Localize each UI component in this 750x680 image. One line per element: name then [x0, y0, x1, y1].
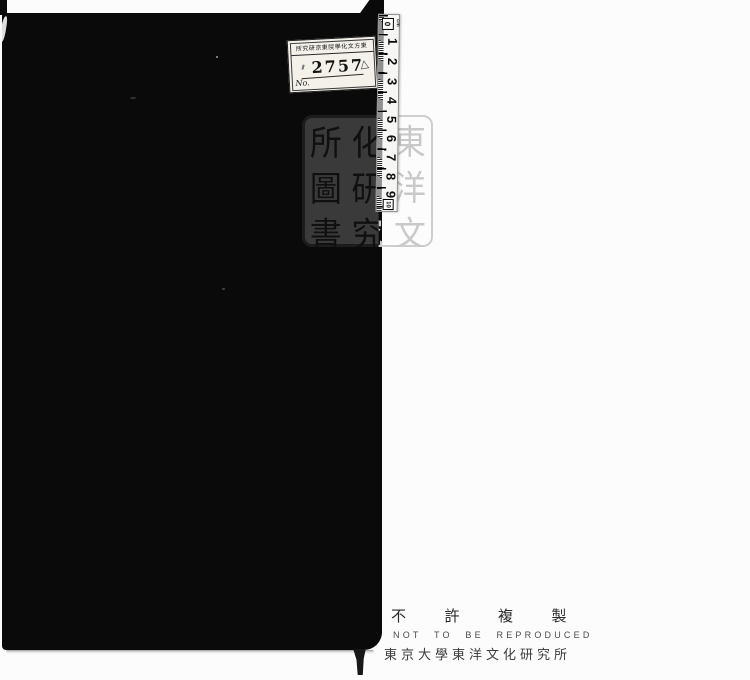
footer-notice-en: NOT TO BE REPRODUCED [393, 630, 593, 640]
ruler-number: 6 [384, 131, 399, 145]
ruler-number: 1 [385, 34, 400, 48]
cover-bottom-shadow [6, 650, 374, 654]
accession-check-mark: △ [359, 56, 369, 70]
dust-speck [216, 56, 218, 58]
seal-character: 文 [389, 207, 431, 257]
library-seal: 所 圖 書 化 研 究 東 洋 文 所 圖 書 化 研 [302, 115, 433, 247]
scale-ruler: 0 cm 1 2 3 4 5 6 7 8 9 10 [376, 14, 400, 212]
ruler-number: 8 [383, 169, 398, 183]
seal-column: 所 圖 書 [305, 118, 347, 244]
book-cover-top-left-corner [0, 0, 7, 15]
library-label-frame: 所究硏京東院學化文方東 2757 △ No. [289, 38, 375, 90]
book-cover-top-edge [356, 0, 384, 14]
label-number-area: 2757 △ No. [291, 51, 375, 89]
ruler-unit-label: cm [395, 19, 401, 27]
scanned-page: 所 圖 書 化 研 究 東 洋 文 所 圖 書 化 研 [0, 0, 750, 680]
ruler-number: 4 [384, 93, 399, 107]
ruler-number: 3 [385, 74, 400, 88]
seal-character: 所 [305, 116, 347, 166]
ruler-number: 7 [384, 150, 399, 164]
footer-institution: 東京大學東洋文化研究所 [384, 644, 571, 663]
ruler-zero-box: 0 [382, 18, 394, 30]
book-cover [2, 13, 382, 650]
ruler-number: 2 [385, 54, 400, 68]
dust-speck [222, 288, 225, 290]
library-label: 所究硏京東院學化文方東 2757 △ No. [287, 36, 379, 94]
footer-notice-ja: 不許複製 [391, 605, 605, 626]
dust-speck [130, 97, 136, 99]
ruler-end-box: 10 [383, 199, 394, 210]
pencil-tick [301, 64, 304, 69]
seal-character: 圖 [305, 162, 347, 212]
ruler-number: 5 [384, 112, 399, 126]
label-no-prefix: No. [295, 78, 310, 88]
